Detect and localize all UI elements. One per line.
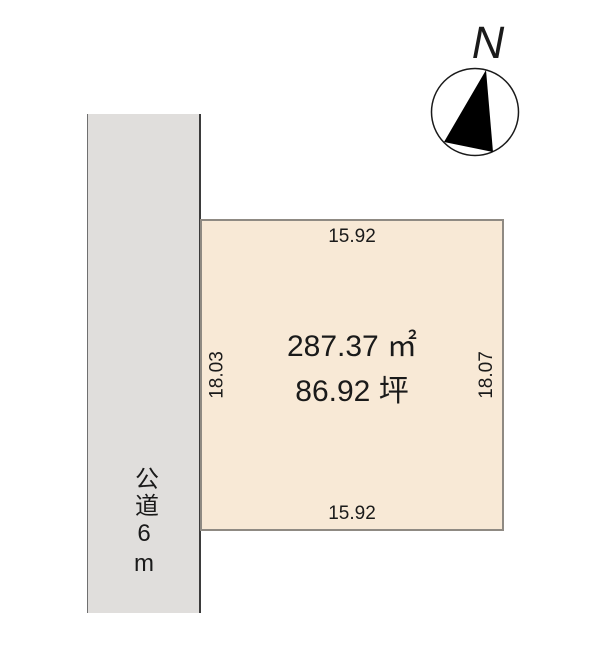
road-strip: 公道6m — [87, 114, 201, 613]
area-square-meters: 287.37 ㎡ — [287, 324, 417, 369]
compass-icon — [430, 67, 520, 157]
area-tsubo: 86.92 坪 — [295, 369, 408, 414]
area-block: 287.37 ㎡ 86.92 坪 — [202, 215, 502, 523]
land-parcel: 15.92 15.92 18.03 18.07 287.37 ㎡ 86.92 坪 — [200, 219, 504, 531]
road-label: 公道6m — [132, 466, 156, 580]
north-label: N — [458, 20, 518, 65]
site-plan-diagram: N 公道6m 15.92 15.92 18.03 18.07 287.37 ㎡ … — [0, 0, 600, 659]
